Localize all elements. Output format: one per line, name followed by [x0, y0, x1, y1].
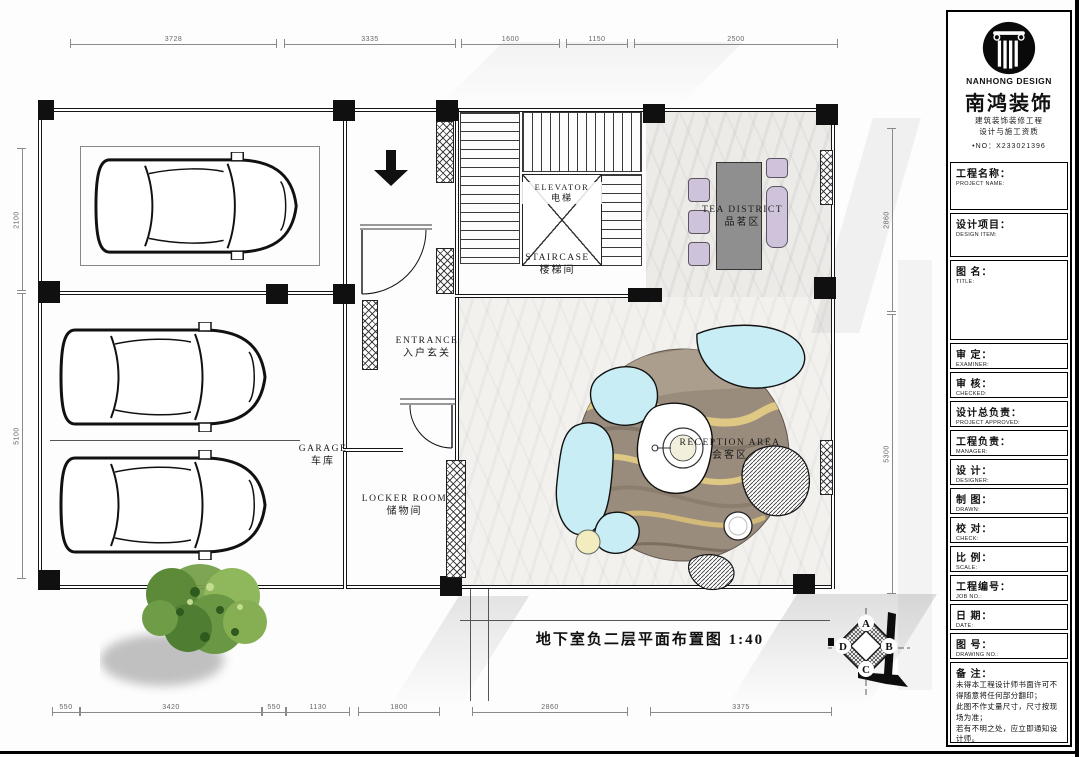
- dim-bottom: 3375: [650, 704, 832, 713]
- wall-exterior-left: [38, 108, 42, 589]
- column: [628, 288, 662, 302]
- brand-cert-line1: 建筑装饰装修工程: [948, 115, 1070, 126]
- column: [38, 570, 60, 590]
- tea-chair: [688, 242, 710, 266]
- marker-letter-b: B: [885, 641, 893, 653]
- field-checked: 审 核： CHECKED:: [950, 372, 1068, 398]
- column: [436, 100, 458, 121]
- tea-chair: [688, 178, 710, 202]
- title-block: NANHONG DESIGN 南鸿装饰 建筑装饰装修工程 设计与施工资质 •NO…: [946, 10, 1072, 747]
- notes-label: 备 注：: [956, 665, 1062, 680]
- line-below-plan: [460, 620, 830, 621]
- column: [333, 100, 355, 121]
- dim-top: 2500: [634, 36, 838, 45]
- page-border-right: [1075, 0, 1079, 757]
- field-project-name: 工程名称： PROJECT NAME:: [950, 162, 1068, 210]
- hatched-column: [820, 150, 833, 205]
- door-swing-entrance-top: [352, 222, 440, 302]
- notes-box: 备 注： 未得本工程设计师书面许可不得随意将任何部分翻印； 此图不作丈量尺寸，尺…: [950, 662, 1068, 743]
- dim-bottom: 3420: [80, 704, 262, 713]
- column: [816, 104, 838, 125]
- down-arrow-icon: [374, 150, 408, 190]
- dim-right: 5300: [884, 314, 893, 594]
- dim-top: 1150: [566, 36, 628, 45]
- column: [38, 100, 54, 120]
- hatched-column: [436, 121, 454, 183]
- field-manager: 工程负责： MANAGER:: [950, 430, 1068, 456]
- marker-letter-a: A: [862, 618, 870, 630]
- sofa-cyan: [595, 512, 639, 553]
- dim-bottom: 1800: [358, 704, 440, 713]
- brand-name-cn: 南鸿装饰: [948, 87, 1070, 116]
- dim-right: 2860: [884, 128, 893, 312]
- column: [38, 281, 60, 303]
- field-examiner: 审 定： EXAMINER:: [950, 343, 1068, 369]
- field-job-no: 工程编号： JOB NO.:: [950, 575, 1068, 601]
- brand-name-en: NANHONG DESIGN: [948, 76, 1070, 86]
- dim-bottom: 550: [262, 704, 286, 713]
- wall-stair-bottom: [455, 294, 645, 298]
- company-logo-icon: [981, 20, 1037, 76]
- dim-left: 2100: [14, 148, 23, 291]
- field-check: 校 对： CHECK:: [950, 517, 1068, 543]
- room-label-locker: LOCKER ROOM 储物间: [352, 494, 457, 518]
- field-date: 日 期： DATE:: [950, 604, 1068, 630]
- car-bottom: [52, 450, 284, 560]
- dim-bottom: 2860: [472, 704, 628, 713]
- door-swing-locker: [400, 396, 460, 460]
- tea-side-pad: [766, 158, 788, 178]
- stair-flight-left: [460, 112, 520, 264]
- marker-letter-c: C: [862, 664, 870, 676]
- field-design-item: 设计项目： DESIGN ITEM:: [950, 213, 1068, 257]
- page-border-bottom: [0, 751, 1079, 754]
- room-label-tea: TEA DISTRICT 品茗区: [660, 205, 825, 229]
- field-project-approved: 设计总负责： PROJECT APPROVED:: [950, 401, 1068, 427]
- field-drawing-no: 图 号： DRAWING NO.:: [950, 633, 1068, 659]
- hatched-column: [362, 300, 378, 370]
- field-title: 图 名： TITLE:: [950, 260, 1068, 340]
- field-drawn: 制 图： DRAWN:: [950, 488, 1068, 514]
- dim-top: 3728: [70, 36, 277, 45]
- stair-flight-top: [522, 112, 642, 172]
- field-scale: 比 例： SCALE:: [950, 546, 1068, 572]
- note-line: 此图不作丈量尺寸，尺寸按现场为准；: [956, 702, 1062, 724]
- hatched-column: [446, 460, 466, 578]
- column: [814, 277, 836, 299]
- car-top: [88, 152, 314, 260]
- wall-garage-right: [343, 108, 347, 589]
- drawing-sheet: ELEVATOR 电梯: [0, 0, 1079, 757]
- room-label-staircase: STAIRCASE 楼梯间: [500, 253, 615, 277]
- room-label-elevator: ELEVATOR 电梯: [522, 182, 602, 204]
- room-label-reception: RECEPTION AREA 会客区: [640, 438, 820, 462]
- stool-yellow: [576, 530, 600, 554]
- shadow-sheet: [437, 42, 743, 108]
- room-label-garage: GARAGE 车库: [283, 444, 363, 468]
- column: [643, 104, 665, 123]
- room-label-entrance: ENTRANCE 入户玄关: [377, 336, 477, 360]
- dim-bottom: 1130: [286, 704, 350, 713]
- dim-left: 5100: [14, 293, 23, 579]
- plan-title: 地下室负二层平面布置图 1:40: [470, 628, 830, 649]
- orientation-marker: A B C D: [828, 608, 910, 700]
- shadow-sheet: [389, 596, 529, 708]
- car-middle: [52, 322, 284, 432]
- wall-garage-mid: [38, 291, 347, 295]
- column: [440, 576, 462, 596]
- dim-top: 1600: [461, 36, 560, 45]
- dim-bottom: 550: [52, 704, 80, 713]
- brand-cert-no: •NO：X233021396: [948, 141, 1070, 151]
- note-line: 未得本工程设计师书面许可不得随意将任何部分翻印；: [956, 680, 1062, 702]
- line-bay-divider: [50, 440, 300, 441]
- marker-letter-d: D: [839, 641, 847, 653]
- dim-top: 3335: [284, 36, 456, 45]
- brand-cert-line2: 设计与施工资质: [948, 126, 1070, 137]
- column: [266, 284, 288, 304]
- note-line: 若有不明之处，应立即通知设计师。: [956, 724, 1062, 744]
- field-designer: 设 计： DESIGNER:: [950, 459, 1068, 485]
- tree: [100, 552, 310, 697]
- stool-white: [724, 512, 752, 540]
